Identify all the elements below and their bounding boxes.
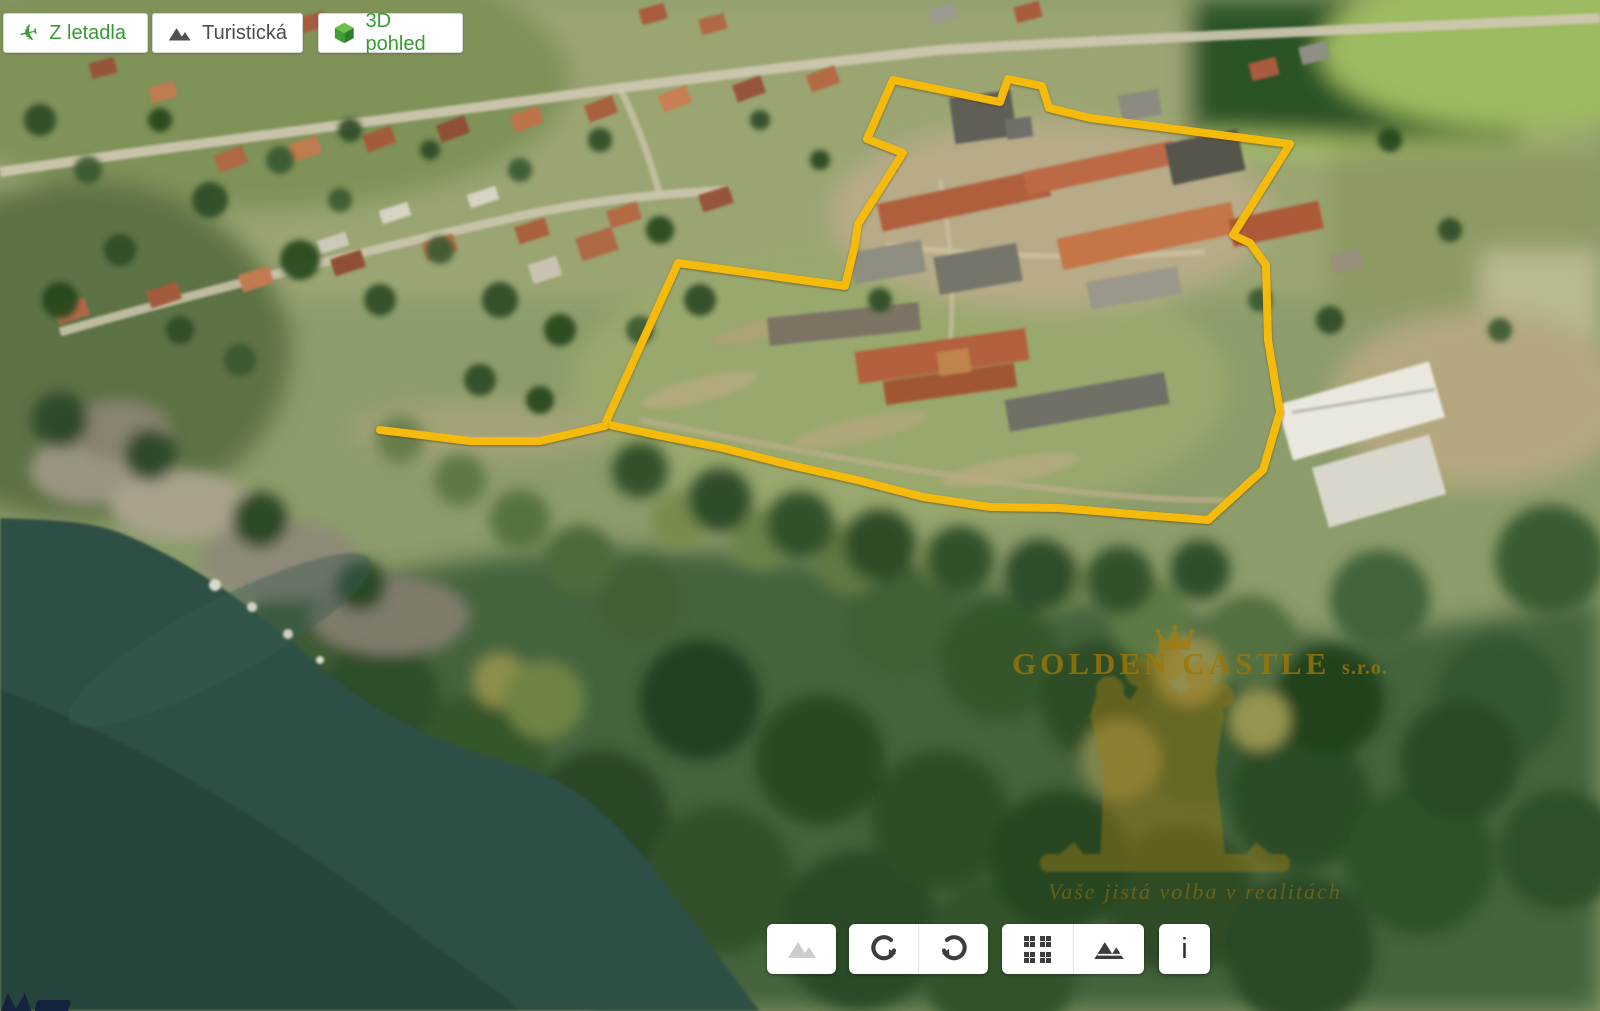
mountains-icon [168,24,191,43]
info-button[interactable]: i [1159,924,1210,974]
info-icon: i [1181,933,1187,966]
aerial-button-label: Z letadla [49,22,126,45]
tourist-button-label: Turistická [202,22,287,45]
map-type-3d-button[interactable]: 3D pohled [318,13,463,53]
airplane-icon: ✈ [17,20,41,47]
aerial-map-canvas[interactable] [0,0,1600,1011]
map-type-tourist-button[interactable]: Turistická [152,13,303,53]
rotate-right-button[interactable] [918,924,988,974]
rotate-clockwise-icon [939,934,969,964]
rotate-counterclockwise-icon [869,934,899,964]
aerial-photo [0,0,1600,1011]
mountains-icon-dark [1093,939,1125,960]
mountains-icon-light [787,939,817,959]
maps-logo[interactable] [0,990,87,1011]
rotate-controls [849,924,988,974]
photos-button[interactable] [767,924,836,974]
layers-controls [1002,924,1144,974]
grid-icon [1024,936,1051,963]
layers-map-button[interactable] [1073,924,1145,974]
map-application-window: GOLDEN CASTLE s.r.o. Vaše jistá volba v … [0,0,1600,1011]
layers-grid-button[interactable] [1002,924,1073,974]
map-type-aerial-button[interactable]: ✈ Z letadla [3,13,148,53]
cube-3d-icon [334,21,355,45]
3d-button-label: 3D pohled [366,10,447,56]
rotate-left-button[interactable] [849,924,918,974]
